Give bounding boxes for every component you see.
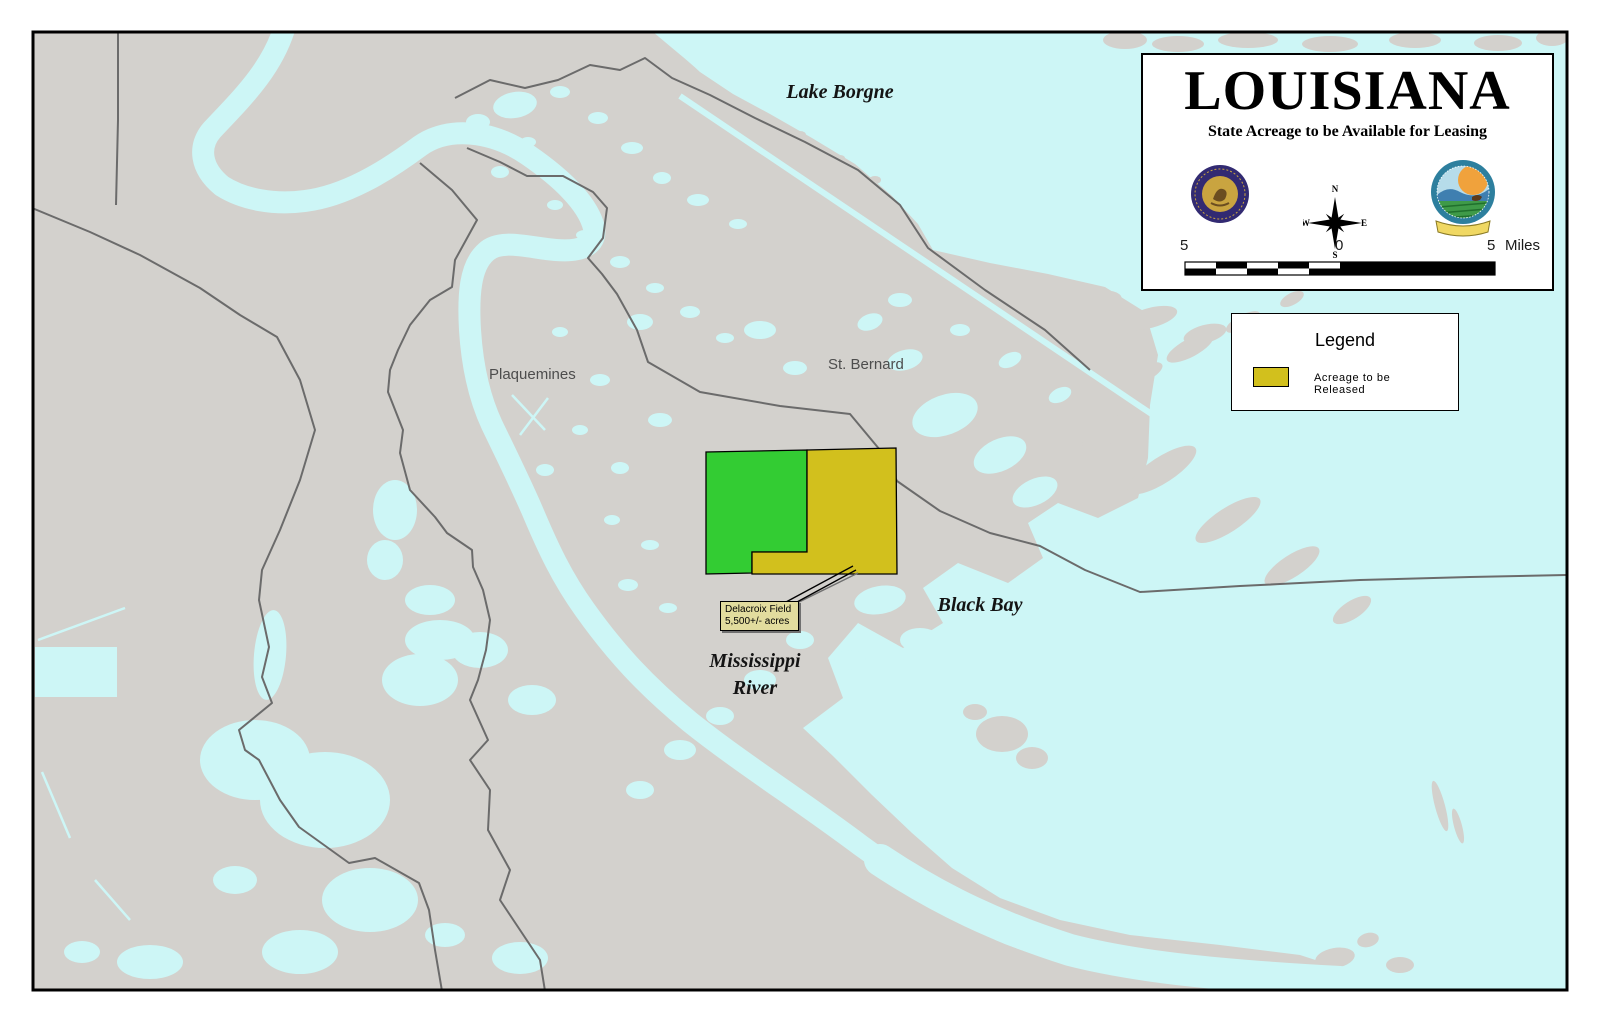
lake-borgne-label: Lake Borgne <box>730 81 950 104</box>
legend-item-label: Acreage to be Released <box>1314 372 1443 396</box>
map-title: LOUISIANA <box>1143 63 1552 119</box>
compass-east-label: E <box>1361 218 1367 228</box>
map-document-page: Lake Borgne Plaquemines St. Bernard Blac… <box>0 0 1600 1024</box>
callout-acreage: 5,500+/- acres <box>725 616 798 628</box>
dnr-agency-seal-icon <box>1428 159 1498 239</box>
scale-bar-graphic <box>1143 255 1556 281</box>
emblem-row: N S W E <box>1143 155 1552 245</box>
map-subtitle: State Acreage to be Available for Leasin… <box>1143 123 1552 141</box>
compass-west-label: W <box>1303 218 1310 228</box>
delacroix-field-callout: Delacroix Field 5,500+/- acres <box>720 601 799 631</box>
title-box: LOUISIANA State Acreage to be Available … <box>1141 53 1554 291</box>
black-bay-label: Black Bay <box>880 594 1080 617</box>
legend-box: Legend Acreage to be Released <box>1231 313 1459 411</box>
louisiana-state-seal-icon <box>1189 163 1251 225</box>
scale-center-value: 0 <box>1335 237 1343 254</box>
legend-acreage-swatch <box>1253 367 1289 387</box>
scale-left-value: 5 <box>1180 237 1188 254</box>
scale-unit-label: Miles <box>1505 237 1540 254</box>
st-bernard-parish-label: St. Bernard <box>828 356 904 373</box>
compass-north-label: N <box>1332 184 1339 194</box>
legend-title: Legend <box>1232 330 1458 351</box>
mississippi-river-label: Mississippi River <box>650 648 860 702</box>
plaquemines-parish-label: Plaquemines <box>489 366 576 383</box>
scale-right-value: 5 <box>1487 237 1495 254</box>
callout-field-name: Delacroix Field <box>725 604 798 616</box>
legend-item-row: Acreage to be Released <box>1253 367 1443 389</box>
mississippi-river-label-line1: Mississippi <box>650 648 860 675</box>
mississippi-river-label-line2: River <box>650 675 860 702</box>
